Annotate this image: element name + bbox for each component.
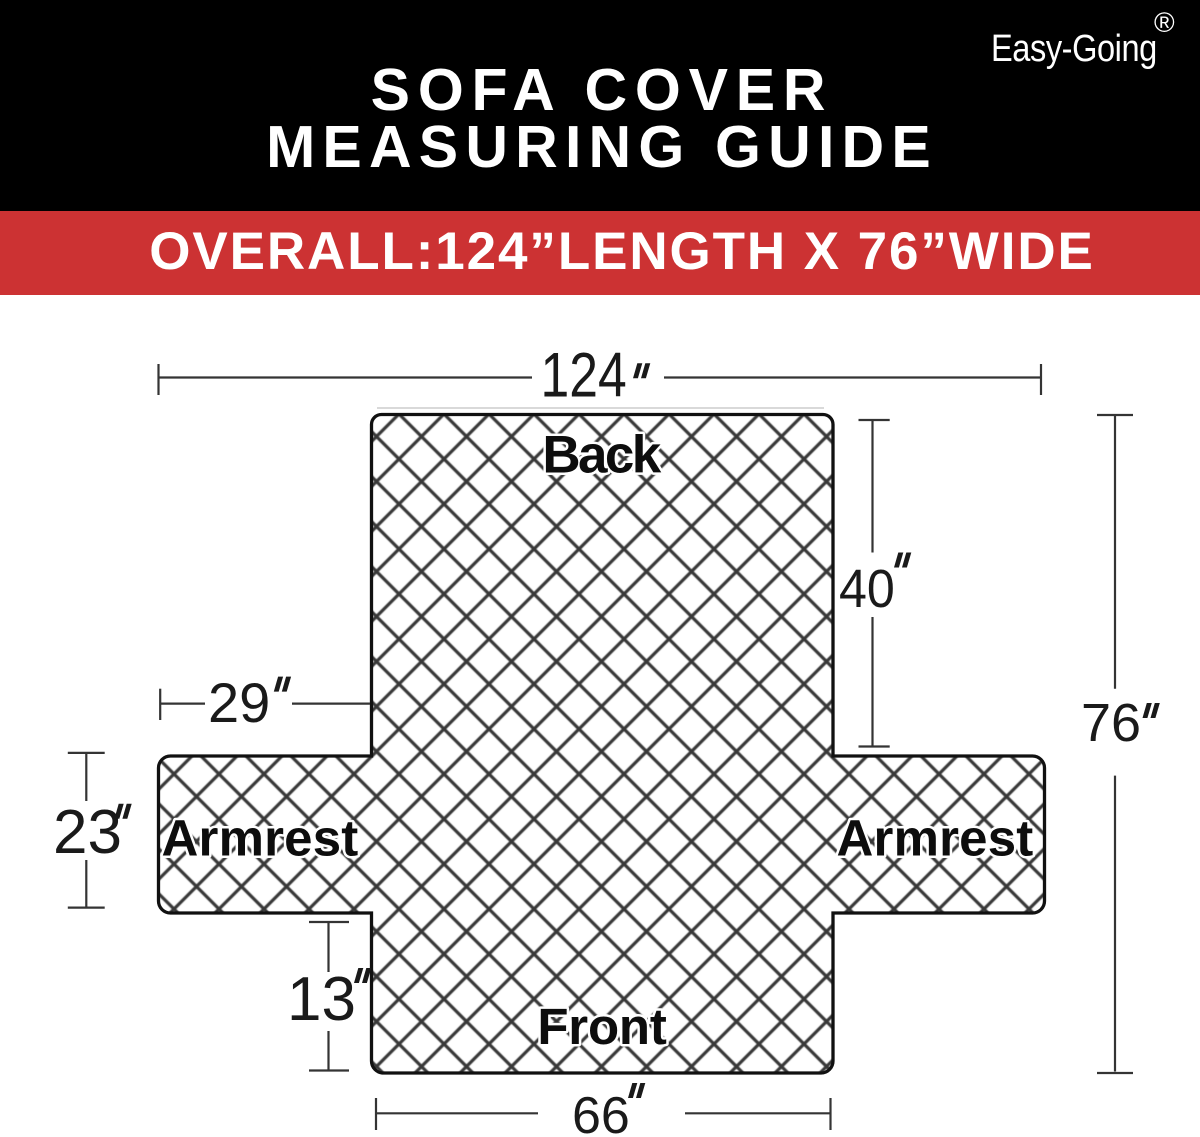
svg-text:124: 124 (541, 341, 627, 411)
svg-text:Armrest: Armrest (837, 810, 1034, 867)
svg-text:66: 66 (572, 1087, 630, 1137)
svg-text:13: 13 (287, 965, 356, 1034)
svg-text:23: 23 (53, 798, 122, 867)
svg-text:Back: Back (542, 426, 661, 485)
svg-text:29: 29 (208, 671, 270, 734)
svg-text:76: 76 (1081, 693, 1141, 753)
svg-text:Front: Front (537, 998, 667, 1055)
svg-text:40: 40 (839, 559, 895, 619)
svg-text:Armrest: Armrest (162, 810, 359, 867)
